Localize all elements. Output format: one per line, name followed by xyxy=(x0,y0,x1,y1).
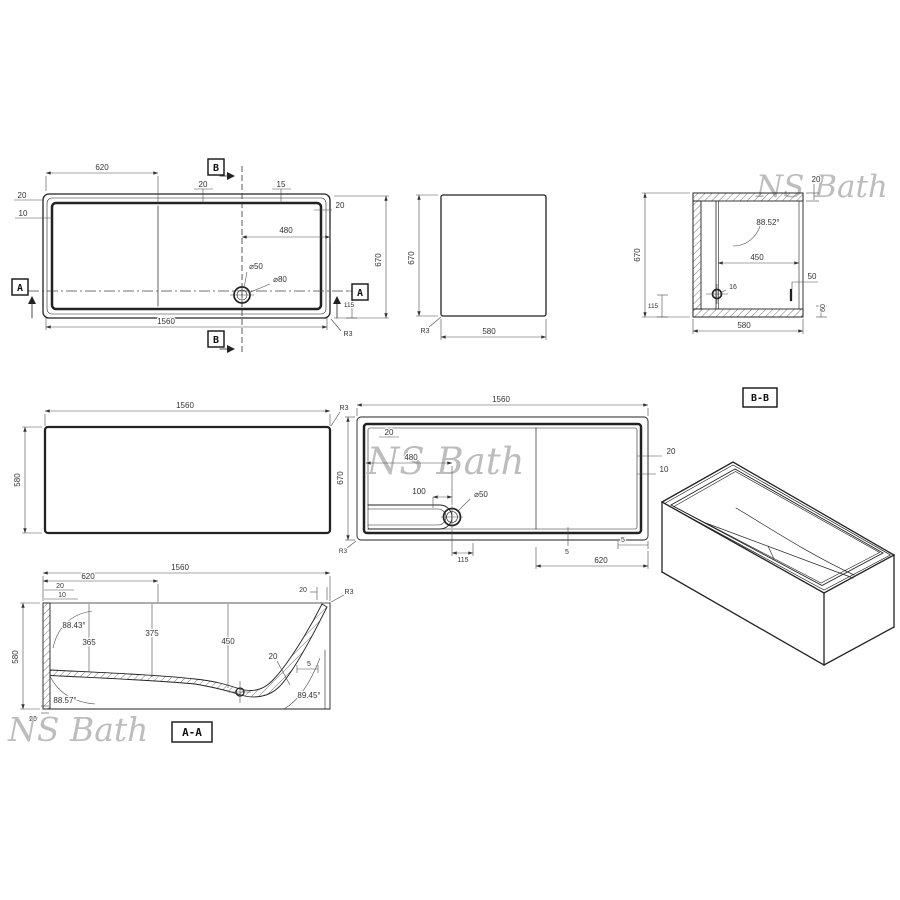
plan-outer-outline xyxy=(43,194,330,318)
end-view-outline xyxy=(441,195,546,316)
side-view-outline xyxy=(45,427,330,533)
bottom-dim-20-right: 20 xyxy=(667,447,676,456)
end-view-dimensions: 670 580 R3 xyxy=(407,195,546,340)
bottom-drain-dia-50: ⌀50 xyxy=(474,490,488,499)
bb-dim-60: 60 xyxy=(820,304,827,312)
aa-dim-5: 5 xyxy=(307,661,311,668)
aa-dim-620: 620 xyxy=(81,572,95,581)
section-marker-a-right: A xyxy=(333,284,368,318)
aa-dim-1560: 1560 xyxy=(171,563,189,572)
technical-drawing-sheet: 620 20 15 20 10 20 480 ⌀50 ⌀80 670 1560 xyxy=(0,0,900,900)
plan-dim-20-left: 20 xyxy=(18,191,27,200)
iso-rim-outer xyxy=(662,462,894,593)
marker-b-bottom-label: B xyxy=(213,335,219,346)
bottom-dim-5-left: 5 xyxy=(565,549,569,556)
bb-bottom-hatch xyxy=(693,309,803,317)
marker-b-top-label: B xyxy=(213,163,219,174)
bottom-dim-10-right: 10 xyxy=(660,465,669,474)
marker-a-left-label: A xyxy=(17,283,23,294)
aa-dim-20-floor: 20 xyxy=(269,652,278,661)
side-view: 1560 580 R3 xyxy=(13,401,349,533)
aa-dim-10-top-left: 10 xyxy=(58,592,66,599)
plan-view: 620 20 15 20 10 20 480 ⌀50 ⌀80 670 1560 xyxy=(12,159,389,354)
bottom-dim-480: 480 xyxy=(404,453,418,462)
bb-dim-450: 450 xyxy=(750,253,764,262)
bb-dim-115: 115 xyxy=(648,303,659,310)
plan-dimensions: 620 20 15 20 10 20 480 ⌀50 ⌀80 670 1560 xyxy=(14,163,389,338)
bottom-dim-5-right: 5 xyxy=(621,537,625,544)
bottom-dim-670: 670 xyxy=(336,471,345,485)
plan-inner-rim xyxy=(52,203,321,309)
plan-dim-620: 620 xyxy=(95,163,109,172)
aa-dim-450: 450 xyxy=(221,637,235,646)
plan-dim-480: 480 xyxy=(279,226,293,235)
aa-radius-r3: R3 xyxy=(345,589,354,596)
plan-rim-line xyxy=(47,198,326,314)
section-arrow-right-icon xyxy=(227,172,235,180)
plan-drain-dia-50: ⌀50 xyxy=(249,262,263,271)
bb-angle: 88.52° xyxy=(756,218,779,227)
bottom-dim-1560: 1560 xyxy=(492,395,510,404)
bb-top-rim-hatch xyxy=(693,193,803,201)
plan-radius-r3: R3 xyxy=(344,331,353,338)
bb-drain xyxy=(706,284,728,304)
end-radius-r3: R3 xyxy=(421,328,430,335)
aa-dim-20-top-left: 20 xyxy=(56,583,64,590)
plan-dim-20-right: 20 xyxy=(336,201,345,210)
section-marker-b-bottom: B xyxy=(208,331,235,353)
bottom-dim-100: 100 xyxy=(412,487,426,496)
side-radius-r3: R3 xyxy=(340,405,349,412)
aa-title-label: A-A xyxy=(182,726,202,739)
bottom-dim-20-top: 20 xyxy=(385,428,394,437)
aa-angle-bottom-right: 89.45° xyxy=(297,691,320,700)
aa-dim-20-top-right: 20 xyxy=(299,587,307,594)
plan-dim-20-top: 20 xyxy=(199,180,208,189)
bb-title-label: B-B xyxy=(751,393,769,404)
bb-dim-50: 50 xyxy=(808,272,817,281)
plan-dim-115: 115 xyxy=(344,302,355,309)
aa-dim-365: 365 xyxy=(82,638,96,647)
iso-rim-inner xyxy=(671,469,883,586)
end-dim-580: 580 xyxy=(482,327,496,336)
section-marker-b-top: B xyxy=(208,159,235,180)
plan-dim-10-left: 10 xyxy=(19,209,28,218)
aa-drain xyxy=(229,681,251,703)
isometric-view xyxy=(662,462,894,665)
aa-angle-top-left: 88.43° xyxy=(62,621,85,630)
bb-dim-16: 16 xyxy=(729,284,737,291)
bathtub-drawing: 620 20 15 20 10 20 480 ⌀50 ⌀80 670 1560 xyxy=(0,0,900,900)
aa-left-wall-hatch xyxy=(43,603,50,709)
bb-dim-580: 580 xyxy=(737,321,751,330)
bottom-dim-620: 620 xyxy=(594,556,608,565)
plan-dim-15: 15 xyxy=(277,180,286,189)
end-dim-670: 670 xyxy=(407,251,416,265)
bb-left-wall-hatch xyxy=(693,201,701,309)
section-arrow-right-icon xyxy=(227,345,235,353)
section-aa-title: A-A xyxy=(172,722,212,742)
plan-dim-1560: 1560 xyxy=(157,317,175,326)
end-view: 670 580 R3 xyxy=(407,195,546,340)
watermark-bottom-left: NS Bath xyxy=(7,710,148,749)
side-dim-1560: 1560 xyxy=(176,401,194,410)
bottom-view: NS Bath 1560 670 20 480 100 ⌀50 115 5 xyxy=(336,395,676,569)
plan-drain xyxy=(230,283,254,307)
side-view-dimensions: 1560 580 R3 xyxy=(13,401,349,533)
plan-dim-670: 670 xyxy=(374,253,383,267)
aa-dim-580: 580 xyxy=(11,650,20,664)
bb-dim-670: 670 xyxy=(633,248,642,262)
section-marker-a-left: A xyxy=(12,279,36,318)
section-arrow-up-icon xyxy=(333,296,341,304)
aa-floor-hatch xyxy=(50,604,327,697)
bottom-drain-channel xyxy=(368,505,452,529)
section-arrow-up-icon xyxy=(28,296,36,304)
bb-outline xyxy=(693,193,803,317)
bottom-radius-r3: R3 xyxy=(339,548,348,555)
bb-dim-20: 20 xyxy=(812,175,821,184)
watermark-center: NS Bath xyxy=(366,440,524,483)
section-aa-view: 1560 620 20 10 20 R3 88.43° 365 375 450 … xyxy=(7,563,354,749)
section-bb-view: NS Bath 88.52° 450 20 16 50 60 xyxy=(633,169,888,407)
marker-a-right-label: A xyxy=(357,288,363,299)
aa-dim-375: 375 xyxy=(145,629,159,638)
section-bb-title: B-B xyxy=(743,388,777,407)
aa-angle-bottom-left: 88.57° xyxy=(53,696,76,705)
plan-drain-dia-80: ⌀80 xyxy=(273,275,287,284)
bottom-dim-115: 115 xyxy=(457,557,468,564)
side-dim-580: 580 xyxy=(13,473,22,487)
